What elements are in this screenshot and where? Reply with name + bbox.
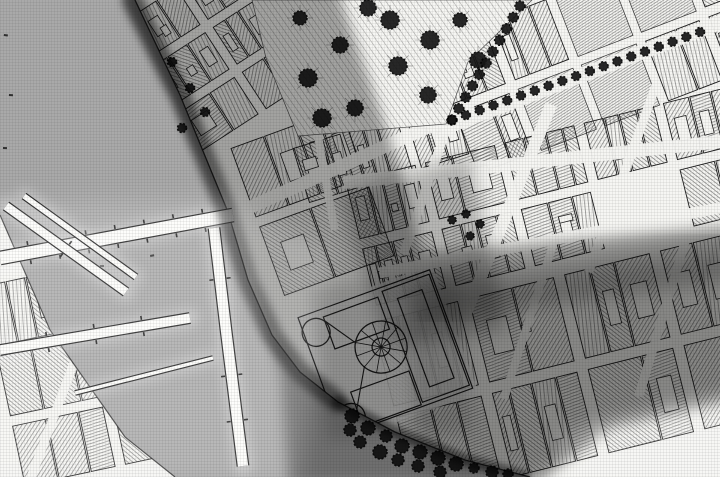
tree [613,57,622,66]
tree [389,57,407,75]
tree [503,96,512,105]
tree [474,69,484,79]
water-fleck [3,147,7,149]
tree [448,116,457,125]
tree [696,28,705,37]
tree [544,81,553,90]
tree [627,52,636,61]
glow-bridge-junction-light [0,198,330,477]
tree [682,32,691,41]
tree [467,81,477,91]
tree [488,47,498,57]
tree [475,106,484,115]
map-canvas [0,0,720,477]
water-fleck [9,94,13,96]
tree [420,87,436,103]
tree [454,104,464,114]
tree [508,12,518,22]
tree [381,11,399,29]
tree [668,37,677,46]
tree [461,92,471,102]
tree [481,58,491,68]
tree [515,1,525,11]
tree [572,72,581,81]
tree [501,24,511,34]
tree [530,86,539,95]
tree [461,111,470,120]
tree [421,31,439,49]
tree [360,0,376,16]
tree [640,47,649,56]
tree [516,91,525,100]
tree [599,62,608,71]
tree [453,13,467,27]
tree [654,42,663,51]
tree [495,35,505,45]
etched-city-map [0,0,720,477]
tree [558,76,567,85]
tree [489,101,498,110]
tree [585,67,594,76]
